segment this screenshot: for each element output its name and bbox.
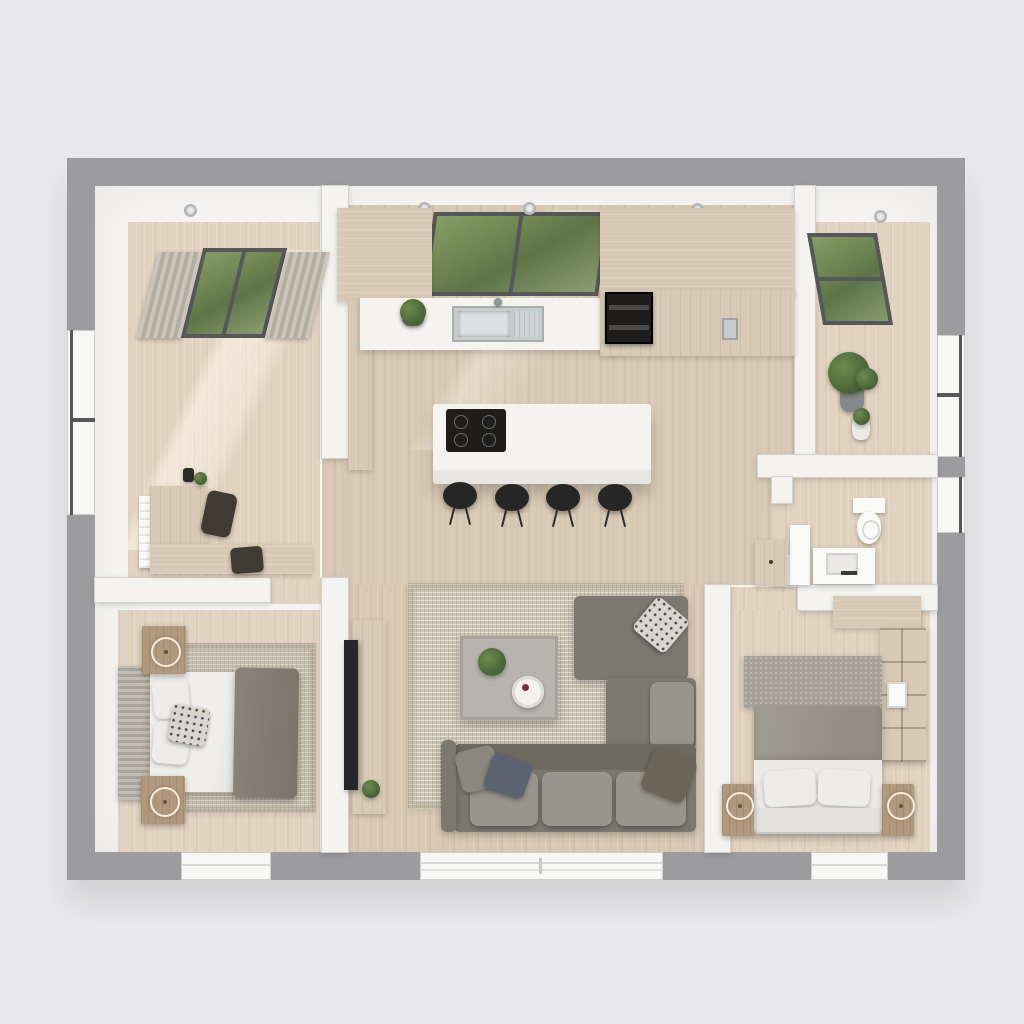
window-sill-line	[181, 864, 271, 866]
window-right-bathroom	[937, 477, 965, 533]
toilet-cistern	[853, 498, 885, 513]
kitchen-sink	[452, 306, 544, 342]
window-bottom-bedroom-2	[811, 852, 888, 880]
window-frame-line	[959, 477, 962, 533]
stool-seat	[546, 484, 580, 511]
oven-door-slit	[609, 325, 649, 330]
burner-ring	[482, 415, 496, 429]
desk-lamp	[183, 468, 194, 482]
bedroom-2-footboard	[754, 808, 882, 832]
coffee-table	[460, 636, 558, 720]
curtained-window-office	[137, 248, 331, 338]
induction-cooktop	[446, 409, 506, 452]
ceiling-spotlight	[184, 204, 197, 217]
stool-seat	[598, 484, 632, 511]
window-sill-line	[811, 864, 888, 866]
sink-basin	[458, 311, 510, 337]
window-mullion	[815, 277, 886, 281]
bar-stool	[598, 484, 632, 540]
bathroom-vanity	[813, 548, 875, 584]
stool-leg	[552, 510, 558, 527]
sofa-back-cushion-column	[650, 682, 694, 748]
stool-leg	[449, 508, 455, 525]
stool-leg	[501, 510, 507, 527]
wall-office-bedroom-1	[95, 578, 270, 602]
cabinet-knob	[769, 560, 773, 564]
sink-drainer	[514, 311, 538, 337]
wardrobe-cabinet	[833, 596, 921, 628]
door-opening-office-kitchen	[322, 458, 348, 578]
hall-cabinet	[754, 540, 788, 586]
bedroom-2-pillow	[817, 769, 871, 808]
wall-utility-bathroom	[758, 455, 937, 477]
stool-seat	[443, 482, 477, 509]
console-plant	[362, 780, 380, 798]
double-oven	[605, 292, 653, 344]
door-opening-bedroom-1	[270, 578, 322, 604]
small-potted-plant	[853, 408, 870, 425]
window-mullion	[539, 858, 542, 874]
ceiling-spotlight	[874, 210, 887, 223]
window-frame-line	[70, 330, 73, 515]
fridge-handle	[722, 318, 738, 340]
tray-berries	[522, 684, 529, 691]
wall-bathroom-left-upper	[772, 477, 792, 503]
window-mullion	[508, 212, 524, 296]
stool-leg	[620, 510, 626, 527]
toilet	[853, 498, 885, 546]
table-lamp	[151, 637, 181, 667]
oven-door-slit	[609, 305, 649, 310]
burner-ring	[454, 433, 468, 447]
side-chair	[230, 546, 264, 575]
accent-pillow	[167, 703, 211, 747]
counter-plant	[400, 299, 426, 325]
tv-panel	[344, 640, 358, 790]
stool-leg	[604, 510, 610, 527]
window-mullion	[937, 393, 959, 397]
window-glass-kitchen	[422, 212, 610, 296]
desk-left-section	[150, 486, 208, 548]
floor-plan-render	[0, 0, 1024, 1024]
stool-seat	[495, 484, 529, 511]
table-lamp	[887, 792, 915, 820]
bar-stool	[546, 484, 580, 540]
table-lamp	[726, 792, 754, 820]
window-mullion	[221, 248, 247, 338]
coffee-table-plant	[478, 648, 506, 676]
kitchen-faucet	[494, 298, 502, 306]
bedroom-1-throw-blanket	[233, 667, 299, 798]
sliding-window-living	[420, 852, 663, 880]
stool-leg	[465, 508, 471, 525]
sofa-left-arm	[441, 740, 456, 832]
toilet-bowl	[857, 512, 881, 544]
ceiling-spotlight	[523, 202, 536, 215]
window-left-office	[67, 330, 95, 515]
burner-ring	[454, 415, 468, 429]
shelf-speaker	[887, 682, 907, 708]
window-bottom-bedroom-1	[181, 852, 271, 880]
stool-leg	[517, 510, 523, 527]
sofa-seat-cushion	[542, 772, 612, 826]
burner-ring	[482, 433, 496, 447]
bar-stool	[495, 484, 529, 540]
bathroom-tall-cabinet	[790, 525, 810, 585]
large-plant-leaf	[856, 368, 878, 390]
wall-kitchen-utility	[795, 186, 815, 458]
bedroom-2-duvet	[754, 706, 882, 764]
desk-plant	[194, 472, 207, 485]
vanity-faucet	[841, 571, 857, 575]
bedroom-2-pillow	[763, 768, 817, 808]
stool-leg	[568, 510, 574, 527]
window-right-utility	[937, 335, 965, 457]
round-tray	[512, 676, 544, 708]
right-upper-cabinets	[600, 208, 795, 296]
bedroom-2-headboard-panel	[744, 656, 882, 708]
window-mullion	[73, 418, 95, 422]
window-frame-line	[959, 335, 962, 457]
corner-upper-cabinet	[337, 208, 432, 302]
toilet-seat-ring	[862, 520, 880, 540]
bar-stool	[443, 482, 477, 538]
table-lamp	[150, 787, 180, 817]
door-opening-bedroom-2	[730, 587, 798, 610]
